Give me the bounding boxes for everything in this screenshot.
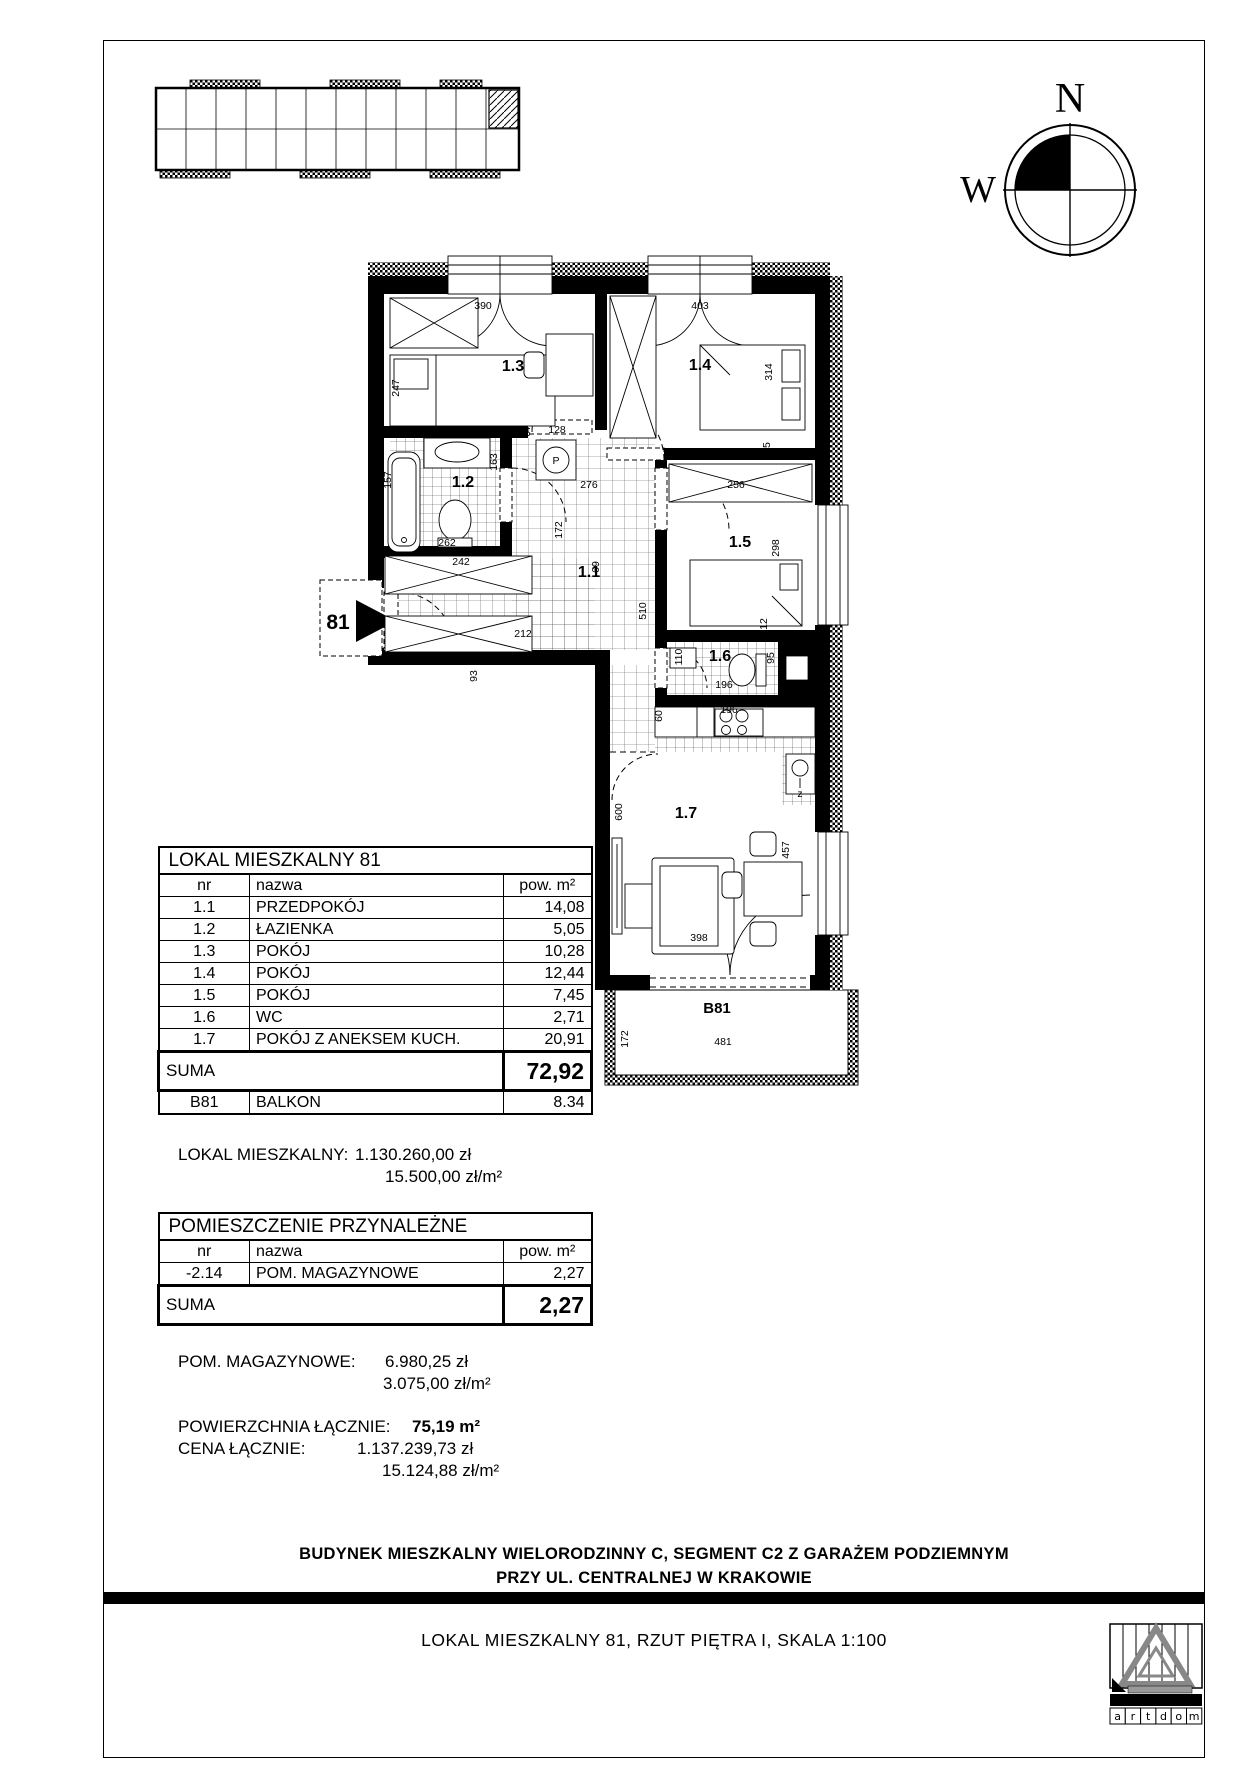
- total-price-per-m2: 15.124,88 zł/m²: [382, 1461, 499, 1481]
- suma-value: 2,27: [504, 1286, 592, 1325]
- dimension-label: 157: [382, 471, 394, 489]
- col-header-nr: nr: [159, 874, 250, 897]
- dimension-label: 358: [496, 652, 514, 664]
- col-header-pow: pow. m²: [504, 874, 592, 897]
- room-area: 2,27: [504, 1263, 592, 1286]
- room-area: 14,08: [504, 897, 592, 919]
- room-area: 2,71: [504, 1007, 592, 1029]
- floor-plan-page: { "footer": { "line1": "BUDYNEK MIESZKAL…: [0, 0, 1250, 1768]
- logo-letter: a: [1114, 1710, 1121, 1723]
- room-name: POM. MAGAZYNOWE: [250, 1263, 504, 1286]
- dimension-label: 276: [580, 479, 598, 491]
- table-row: 1.5 POKÓJ 7,45: [159, 985, 592, 1007]
- table-row: 1.4 POKÓJ 12,44: [159, 963, 592, 985]
- room-nr: 1.3: [159, 941, 250, 963]
- col-header-pow: pow. m²: [504, 1240, 592, 1263]
- dimension-label: 481: [714, 1036, 732, 1048]
- logo-letter: d: [1160, 1710, 1167, 1723]
- building-overview-plan: [150, 70, 530, 190]
- room-name: POKÓJ: [250, 941, 504, 963]
- room-area: 20,91: [504, 1029, 592, 1052]
- artdom-logo: a r t d o m: [1106, 1620, 1208, 1726]
- svg-text:P: P: [552, 455, 559, 467]
- col-header-nazwa: nazwa: [250, 874, 504, 897]
- room-name: ŁAZIENKA: [250, 919, 504, 941]
- balkon-name: BALKON: [250, 1091, 504, 1115]
- apartment-price-value: 1.130.260,00 zł: [355, 1145, 471, 1165]
- dimension-label: 390: [474, 300, 492, 312]
- dimension-label: 196: [715, 679, 733, 691]
- dimension-label: 298: [770, 539, 782, 557]
- dimension-label: 12: [595, 300, 607, 312]
- suma-value: 72,92: [504, 1052, 592, 1091]
- room-nr: 1.7: [159, 1029, 250, 1052]
- col-header-nazwa: nazwa: [250, 1240, 504, 1263]
- compass-rose: N W: [940, 60, 1160, 270]
- unit-number-label: 81: [326, 611, 350, 634]
- dimension-label: 600: [613, 803, 625, 821]
- dimension-label: 172: [553, 521, 565, 539]
- dimension-label: 247: [390, 379, 402, 397]
- logo-letter: o: [1175, 1710, 1182, 1723]
- storage-price-per-m2: 3.075,00 zł/m²: [383, 1374, 491, 1394]
- dimension-label: 69: [590, 561, 602, 573]
- table-row: 1.6 WC 2,71: [159, 1007, 592, 1029]
- dimension-label: 93: [468, 670, 480, 682]
- room-label-1.5: 1.5: [729, 534, 751, 551]
- room-nr: 1.4: [159, 963, 250, 985]
- logo-letter: r: [1131, 1710, 1136, 1723]
- dimension-label: 256: [727, 479, 745, 491]
- dimension-label: 212: [514, 628, 532, 640]
- dimension-label: 262: [438, 537, 456, 549]
- suma-row: SUMA 72,92: [159, 1052, 592, 1091]
- building-description-line1: BUDYNEK MIESZKALNY WIELORODZINNY C, SEGM…: [103, 1545, 1205, 1564]
- room-name: POKÓJ Z ANEKSEM KUCH.: [250, 1029, 504, 1052]
- apartment-price-per-m2: 15.500,00 zł/m²: [385, 1167, 502, 1187]
- logo-letter-boxes: a r t d o m: [1110, 1708, 1202, 1724]
- table-row: 1.1 PRZEDPOKÓJ 14,08: [159, 897, 592, 919]
- balkon-area: 8.34: [504, 1091, 592, 1115]
- room-label-1.4: 1.4: [689, 357, 711, 374]
- dimension-label: 403: [691, 300, 709, 312]
- balkon-nr: B81: [159, 1091, 250, 1115]
- compass-west-label: W: [960, 169, 996, 211]
- dimension-label: 67: [521, 425, 533, 437]
- room-nr: 1.1: [159, 897, 250, 919]
- room-name: PRZEDPOKÓJ: [250, 897, 504, 919]
- room-name: POKÓJ: [250, 963, 504, 985]
- room-label-1.7: 1.7: [675, 805, 697, 822]
- dimension-label: 398: [690, 932, 708, 944]
- building-description-line2: PRZY UL. CENTRALNEJ W KRAKOWIE: [103, 1569, 1205, 1588]
- storage-price-label: POM. MAGAZYNOWE:: [178, 1352, 356, 1372]
- room-nr: 1.6: [159, 1007, 250, 1029]
- dimension-label: 12: [758, 618, 770, 630]
- overview-highlighted-unit: [489, 90, 518, 128]
- dimension-label: 163: [488, 453, 500, 471]
- table-header-row: nr nazwa pow. m²: [159, 874, 592, 897]
- suma-row: SUMA 2,27: [159, 1286, 592, 1325]
- table-row: 1.3 POKÓJ 10,28: [159, 941, 592, 963]
- dimension-label: 110: [673, 648, 685, 665]
- apartment-price-label: LOKAL MIESZKALNY:: [178, 1145, 348, 1165]
- table-row: 1.7 POKÓJ Z ANEKSEM KUCH. 20,91: [159, 1029, 592, 1052]
- compass-north-west-quadrant: [1015, 135, 1070, 190]
- balkon-row: B81 BALKON 8.34: [159, 1091, 592, 1115]
- dimension-label: z: [797, 788, 802, 800]
- total-area-label: POWIERZCHNIA ŁĄCZNIE:: [178, 1417, 391, 1437]
- dimension-label: 250: [437, 426, 455, 438]
- room-area: 7,45: [504, 985, 592, 1007]
- dimension-label: 242: [452, 556, 470, 568]
- dimension-label: 457: [780, 841, 792, 859]
- dimension-label: 95: [765, 652, 777, 664]
- dimension-label: 172: [619, 1030, 631, 1048]
- room-nr: 1.5: [159, 985, 250, 1007]
- compass-north-label: N: [1055, 76, 1085, 122]
- room-nr: 1.2: [159, 919, 250, 941]
- drawing-title: LOKAL MIESZKALNY 81, RZUT PIĘTRA I, SKAL…: [103, 1630, 1205, 1651]
- dimension-label: 314: [763, 363, 775, 381]
- separator-bar: [103, 1592, 1205, 1604]
- dimension-label: 60: [653, 710, 665, 722]
- dimension-label: 510: [637, 602, 649, 620]
- dimension-label: 128: [548, 424, 566, 436]
- installation-shaft: [786, 656, 808, 680]
- table-row: 1.2 ŁAZIENKA 5,05: [159, 919, 592, 941]
- room-area: 10,28: [504, 941, 592, 963]
- table-title: POMIESZCZENIE PRZYNALEŻNE: [159, 1213, 592, 1240]
- table-title: LOKAL MIESZKALNY 81: [159, 847, 592, 874]
- balcony-label: B81: [703, 1000, 731, 1017]
- suma-label: SUMA: [159, 1286, 504, 1325]
- logo-letter: m: [1189, 1710, 1200, 1723]
- apartment-area-table: LOKAL MIESZKALNY 81 nr nazwa pow. m² 1.1…: [157, 846, 593, 1115]
- total-price-label: CENA ŁĄCZNIE:: [178, 1439, 306, 1459]
- table-row: -2.14 POM. MAGAZYNOWE 2,27: [159, 1263, 592, 1286]
- dimension-label: 196: [720, 704, 738, 716]
- total-price-value: 1.137.239,73 zł: [357, 1439, 473, 1459]
- suma-label: SUMA: [159, 1052, 504, 1091]
- room-label-1.6: 1.6: [709, 648, 731, 665]
- room-name: WC: [250, 1007, 504, 1029]
- col-header-nr: nr: [159, 1240, 250, 1263]
- storage-price-value: 6.980,25 zł: [385, 1352, 468, 1372]
- logo-letter: t: [1146, 1710, 1151, 1723]
- room-name: POKÓJ: [250, 985, 504, 1007]
- dimension-label: 25: [761, 442, 773, 454]
- ancillary-room-table: POMIESZCZENIE PRZYNALEŻNE nr nazwa pow. …: [157, 1212, 593, 1326]
- room-label-1.2: 1.2: [452, 474, 474, 491]
- room-area: 5,05: [504, 919, 592, 941]
- room-label-1.3: 1.3: [502, 358, 524, 375]
- room-nr: -2.14: [159, 1263, 250, 1286]
- room-area: 12,44: [504, 963, 592, 985]
- total-area-value: 75,19 m²: [412, 1417, 480, 1437]
- table-header-row: nr nazwa pow. m²: [159, 1240, 592, 1263]
